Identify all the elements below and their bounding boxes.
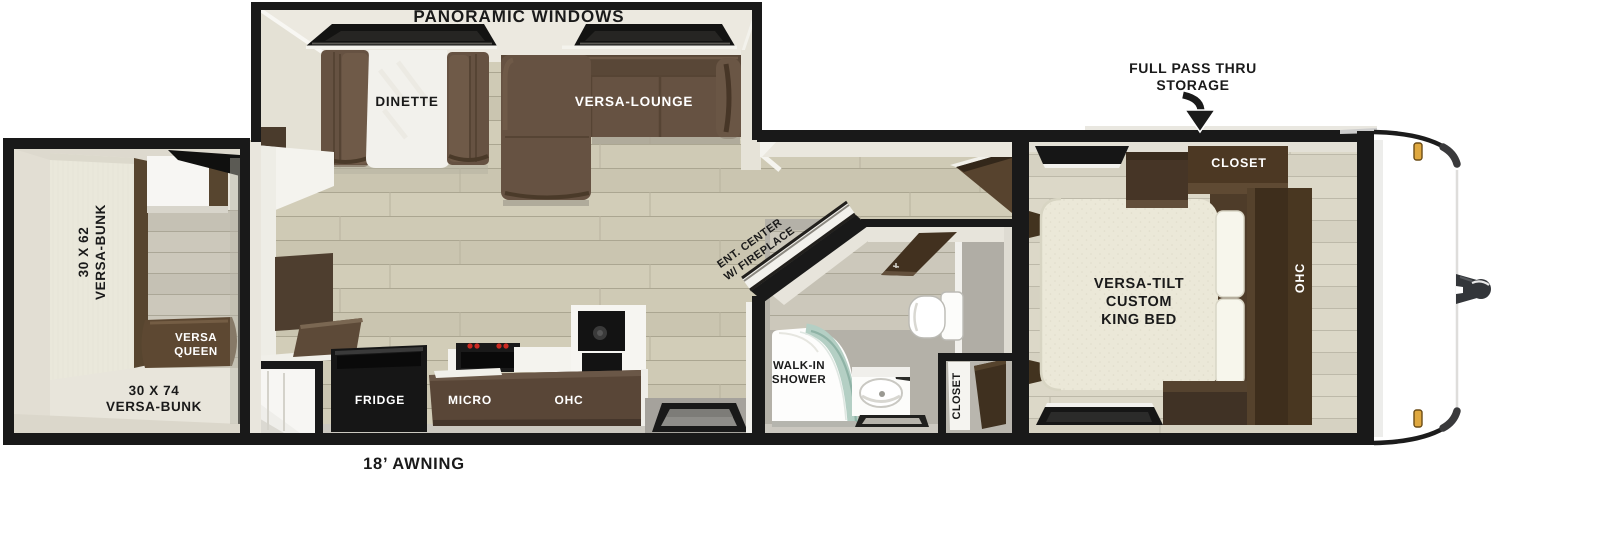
svg-text:CUSTOM: CUSTOM [1106, 294, 1172, 310]
svg-text:VERSA-BUNK: VERSA-BUNK [106, 399, 202, 414]
svg-text:FULL PASS THRU: FULL PASS THRU [1129, 60, 1257, 76]
svg-text:WALK-IN: WALK-IN [773, 360, 825, 372]
svg-text:VERSA: VERSA [175, 332, 217, 344]
svg-text:FRIDGE: FRIDGE [355, 393, 405, 407]
svg-text:VERSA-LOUNGE: VERSA-LOUNGE [575, 94, 693, 109]
svg-text:OHC: OHC [554, 393, 583, 407]
svg-text:MICRO: MICRO [448, 393, 492, 407]
svg-text:SHOWER: SHOWER [772, 374, 826, 386]
svg-text:KING BED: KING BED [1101, 312, 1177, 328]
svg-text:VERSA-TILT: VERSA-TILT [1094, 276, 1184, 292]
svg-text:30 X 62: 30 X 62 [76, 227, 91, 278]
svg-text:CLOSET: CLOSET [1211, 156, 1267, 170]
svg-text:30 X 74: 30 X 74 [129, 383, 180, 398]
svg-text:OHC: OHC [1293, 263, 1307, 293]
svg-text:VERSA-BUNK: VERSA-BUNK [93, 204, 108, 300]
svg-text:DINETTE: DINETTE [375, 94, 438, 109]
svg-text:18’ AWNING: 18’ AWNING [363, 455, 465, 473]
svg-text:STORAGE: STORAGE [1156, 77, 1229, 93]
svg-text:CLOSET: CLOSET [951, 372, 963, 419]
svg-text:QUEEN: QUEEN [174, 346, 217, 358]
svg-text:PANORAMIC WINDOWS: PANORAMIC WINDOWS [413, 7, 624, 26]
